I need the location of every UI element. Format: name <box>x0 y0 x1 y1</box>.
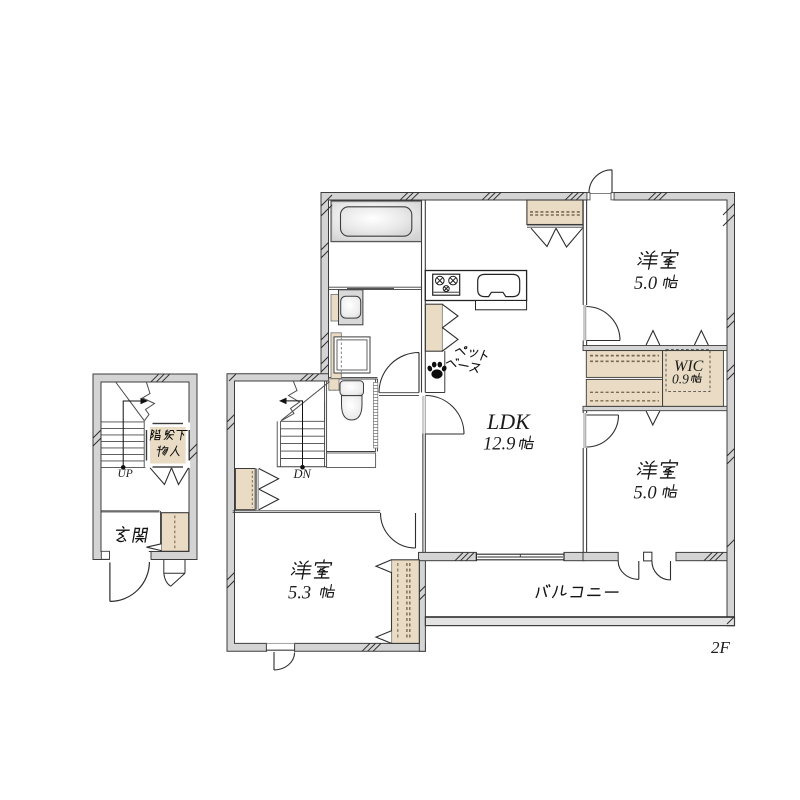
svg-text:5.0: 5.0 <box>634 484 658 504</box>
svg-text:5.3: 5.3 <box>288 584 311 604</box>
svg-text:DN: DN <box>293 467 312 481</box>
svg-text:0.9: 0.9 <box>672 372 689 387</box>
svg-text:5.0: 5.0 <box>634 274 658 294</box>
svg-text:2F: 2F <box>711 638 731 657</box>
svg-text:LDK: LDK <box>486 409 531 434</box>
svg-text:12.9: 12.9 <box>483 435 515 455</box>
svg-text:UP: UP <box>118 468 133 480</box>
